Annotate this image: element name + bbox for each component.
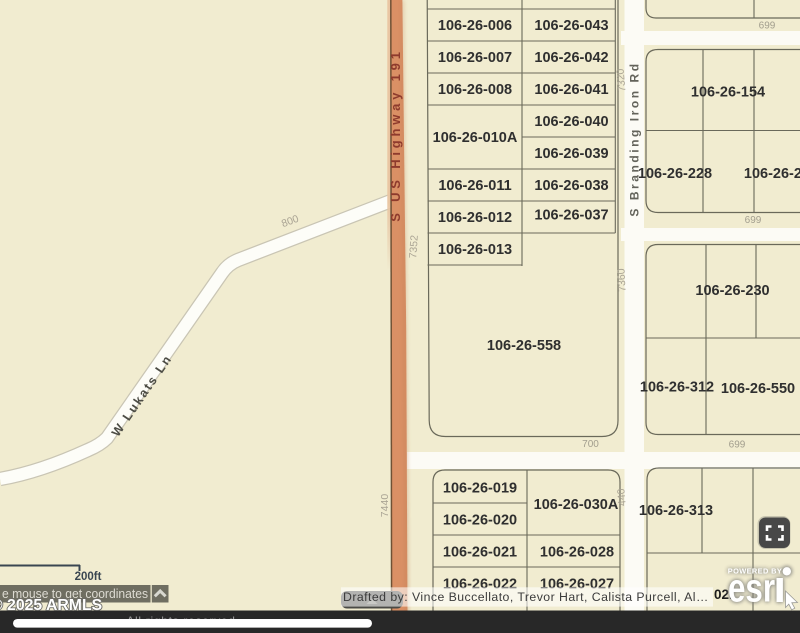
svg-text:106-26-012: 106-26-012 bbox=[438, 210, 512, 226]
svg-text:106-26-040: 106-26-040 bbox=[534, 114, 608, 130]
svg-text:7320: 7320 bbox=[615, 68, 629, 92]
svg-text:7352: 7352 bbox=[407, 235, 421, 259]
svg-text:106-26-007: 106-26-007 bbox=[438, 50, 512, 66]
svg-text:106-26-038: 106-26-038 bbox=[534, 178, 608, 194]
svg-text:7440: 7440 bbox=[379, 494, 391, 518]
svg-text:106-26-006: 106-26-006 bbox=[438, 18, 512, 34]
svg-text:106-26-550: 106-26-550 bbox=[721, 381, 795, 397]
svg-text:esr: esr bbox=[728, 567, 775, 611]
svg-text:106-26-020: 106-26-020 bbox=[443, 513, 517, 529]
svg-text:106-26-008: 106-26-008 bbox=[438, 82, 512, 98]
svg-text:Drafted by: Vince Buccellato,: Drafted by: Vince Buccellato, Trevor Har… bbox=[343, 590, 709, 604]
svg-text:7360: 7360 bbox=[615, 268, 628, 292]
svg-text:200ft: 200ft bbox=[75, 571, 102, 583]
svg-text:S US Highway 191: S US Highway 191 bbox=[388, 48, 403, 222]
svg-text:106-26-013: 106-26-013 bbox=[438, 242, 512, 258]
svg-text:699: 699 bbox=[729, 440, 746, 451]
svg-text:106-26-011: 106-26-011 bbox=[438, 178, 511, 194]
svg-text:106-26-041: 106-26-041 bbox=[534, 82, 608, 98]
svg-text:106-26-229: 106-26-229 bbox=[744, 166, 800, 182]
svg-text:700: 700 bbox=[582, 439, 599, 450]
svg-text:106-26-313: 106-26-313 bbox=[639, 503, 713, 519]
svg-text:106-26-228: 106-26-228 bbox=[638, 166, 712, 182]
svg-text:699: 699 bbox=[745, 215, 762, 226]
svg-text:106-26-030A: 106-26-030A bbox=[534, 497, 619, 513]
svg-text:699: 699 bbox=[759, 21, 776, 32]
svg-text:106-26-154: 106-26-154 bbox=[691, 85, 765, 101]
svg-text:106-26-021: 106-26-021 bbox=[443, 545, 517, 561]
svg-text:106-26-028: 106-26-028 bbox=[540, 545, 614, 561]
svg-text:S Branding Iron Rd: S Branding Iron Rd bbox=[628, 61, 642, 216]
svg-text:106-26-037: 106-26-037 bbox=[534, 208, 608, 224]
svg-text:106-26-558: 106-26-558 bbox=[487, 338, 561, 354]
svg-text:106-26-019: 106-26-019 bbox=[443, 481, 517, 497]
svg-text:106-26-230: 106-26-230 bbox=[695, 283, 769, 299]
svg-text:© 2025 ARMLS: © 2025 ARMLS bbox=[0, 597, 102, 614]
svg-text:440: 440 bbox=[615, 488, 628, 507]
svg-text:106-26-010A: 106-26-010A bbox=[433, 130, 518, 146]
svg-text:106-26-312: 106-26-312 bbox=[640, 380, 714, 396]
svg-text:106-26-039: 106-26-039 bbox=[534, 146, 608, 162]
svg-text:106-26-042: 106-26-042 bbox=[534, 50, 608, 66]
svg-text:106-26-043: 106-26-043 bbox=[534, 18, 608, 34]
